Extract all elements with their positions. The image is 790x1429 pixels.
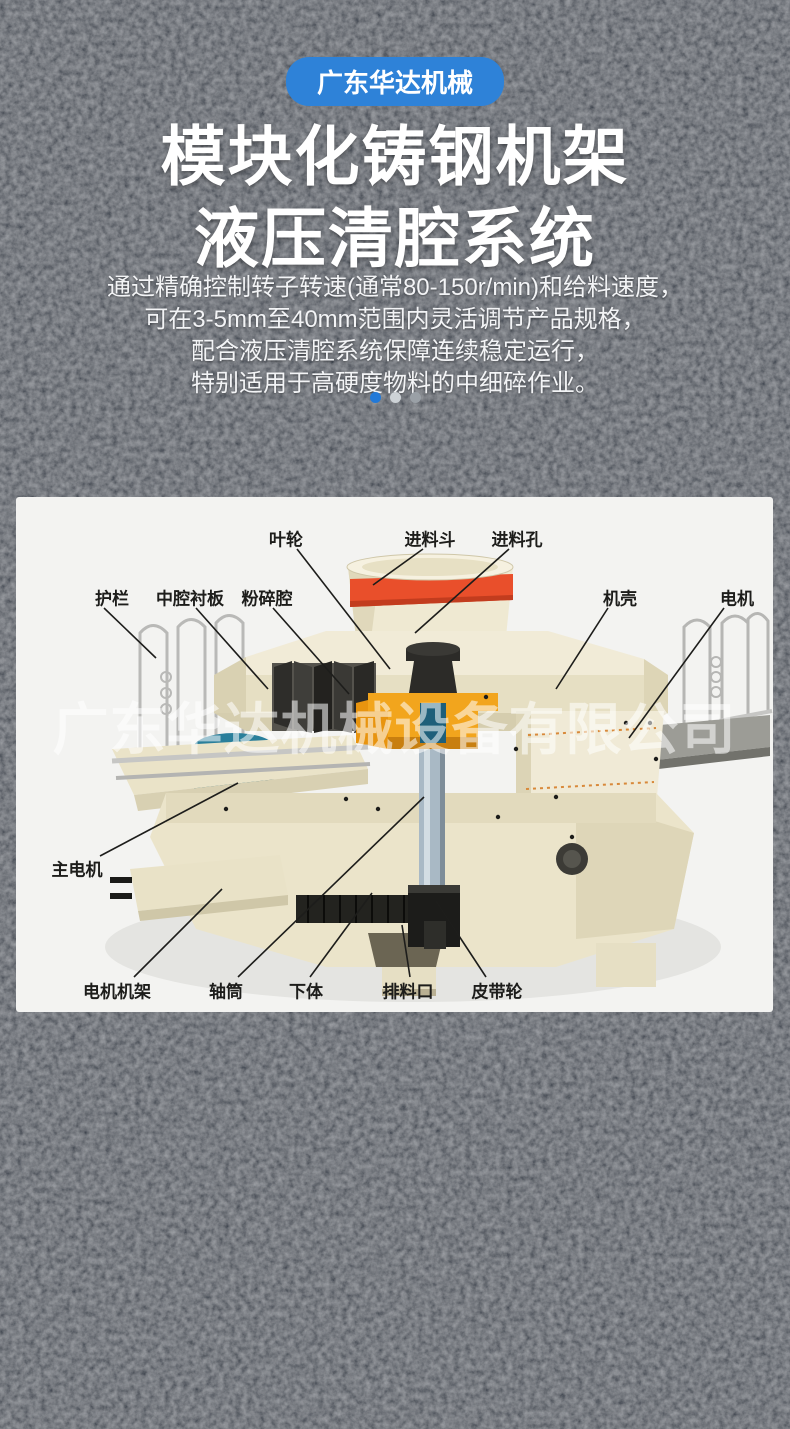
callout-line-14 [436,901,486,977]
poster: 广东华达机械 模块化铸钢机架 液压清腔系统 通过精确控制转子转速(通常80-15… [0,0,790,1429]
part-label-2: 进料斗 [405,526,456,551]
callout-line-3 [415,549,509,633]
part-label-10: 电机机架 [83,978,151,1003]
diagram-panel: 广东华达机械设备有限公司 叶轮进料斗进料孔护栏中腔衬板粉碎腔机壳电机主电机电机机… [16,497,773,1012]
part-label-6: 粉碎腔 [242,585,293,610]
description: 通过精确控制转子转速(通常80-150r/min)和给料速度， 可在3-5mm至… [0,272,790,400]
callout-layer [16,497,773,1012]
callout-line-4 [104,608,156,658]
main-title-line1: 模块化铸钢机架 [0,104,790,198]
callout-line-10 [134,889,222,977]
part-label-9: 主电机 [52,856,103,881]
part-label-12: 下体 [289,978,323,1003]
description-line: 通过精确控制转子转速(通常80-150r/min)和给料速度， [0,272,790,304]
part-label-4: 护栏 [95,585,129,610]
description-line: 配合液压清腔系统保障连续稳定运行， [0,336,790,368]
callout-line-8 [629,608,724,738]
callout-line-7 [556,608,608,689]
part-label-11: 轴筒 [209,978,243,1003]
brand-badge: 广东华达机械 [286,57,504,106]
carousel-dot-2[interactable] [390,392,401,403]
callout-line-6 [273,608,349,694]
carousel-dot-1-active[interactable] [370,392,381,403]
part-label-7: 机壳 [603,585,637,610]
carousel-dots [0,392,790,403]
part-label-1: 叶轮 [269,526,303,551]
callout-line-13 [402,925,410,977]
main-title-line2: 液压清腔系统 [0,186,790,280]
carousel-dot-3[interactable] [410,392,421,403]
description-line: 可在3-5mm至40mm范围内灵活调节产品规格， [0,304,790,336]
part-label-3: 进料孔 [492,526,543,551]
part-label-13: 排料口 [383,978,434,1003]
part-label-5: 中腔衬板 [156,585,224,610]
callout-line-12 [310,893,372,977]
callout-line-11 [238,797,424,977]
callout-line-5 [196,608,268,689]
part-label-14: 皮带轮 [472,978,523,1003]
part-label-8: 电机 [720,585,754,610]
callout-line-2 [373,549,423,585]
callout-line-9 [100,783,238,856]
